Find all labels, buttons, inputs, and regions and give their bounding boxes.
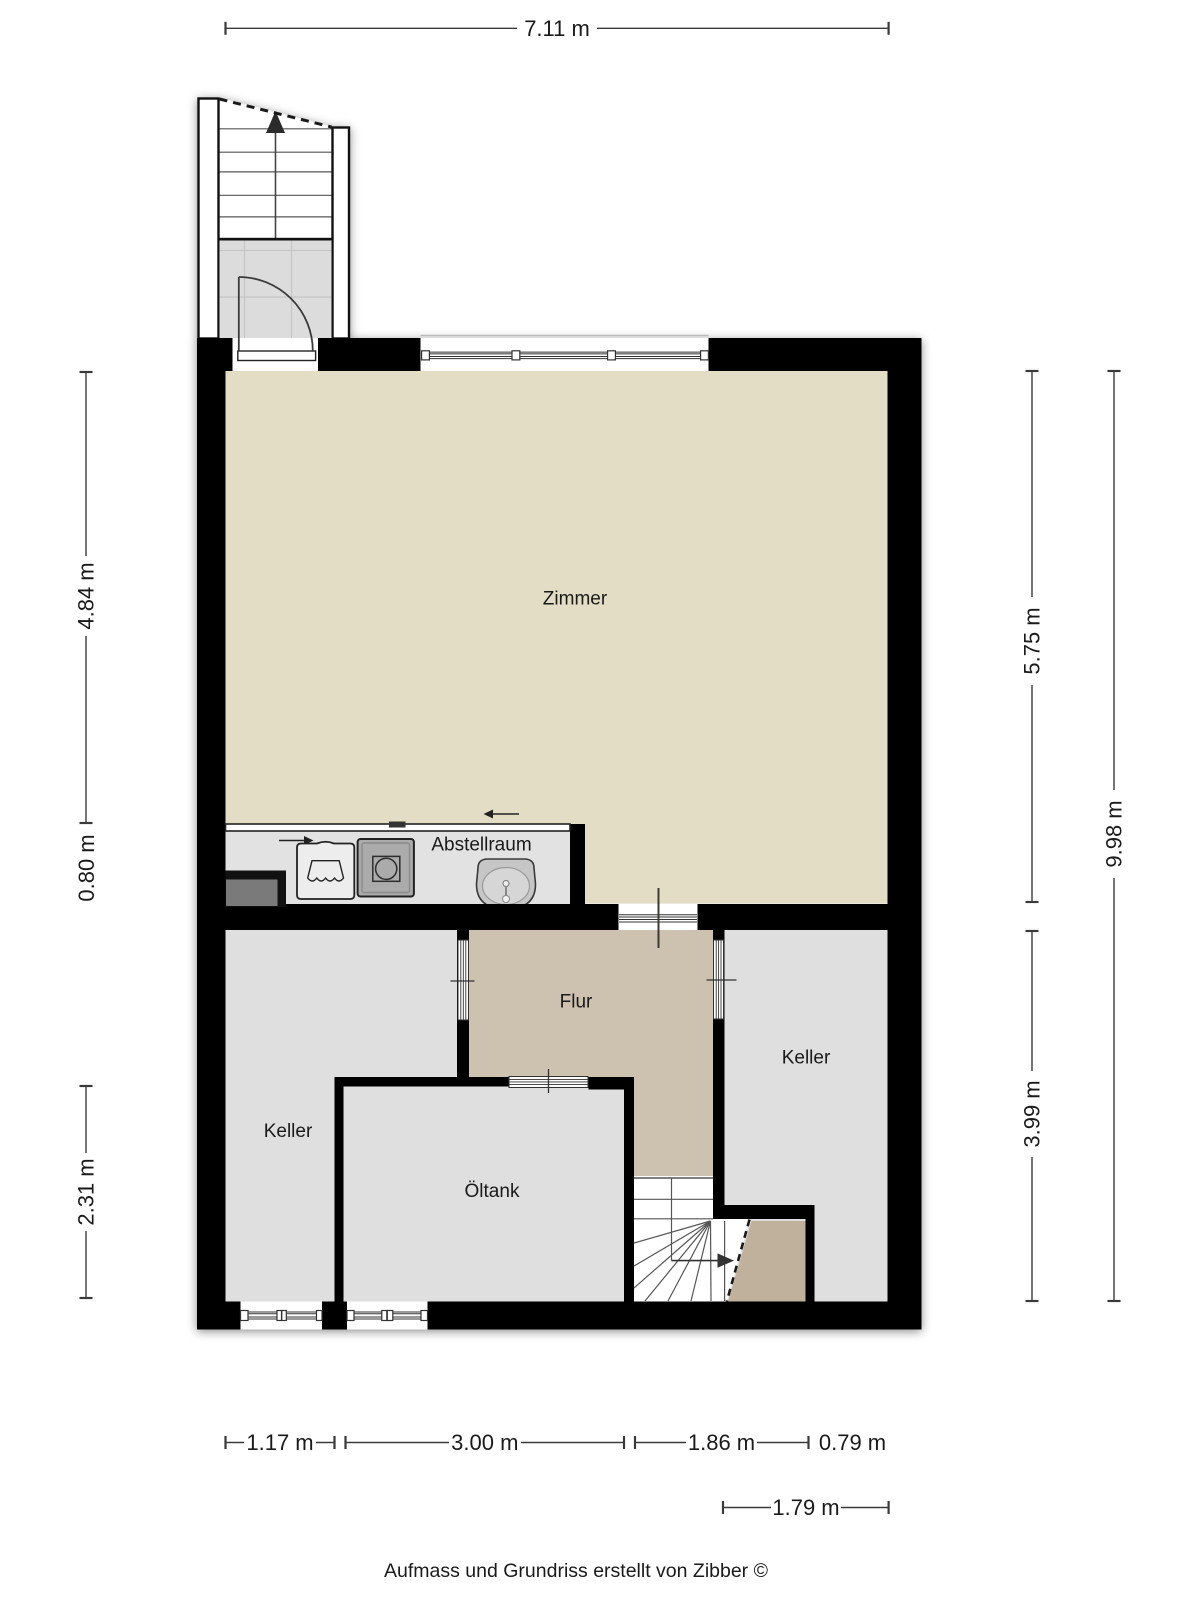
svg-text:1.79 m: 1.79 m xyxy=(772,1495,839,1520)
svg-text:Abstellraum: Abstellraum xyxy=(431,835,531,856)
svg-text:Zimmer: Zimmer xyxy=(543,589,608,610)
svg-text:0.80 m: 0.80 m xyxy=(74,834,99,901)
svg-text:1.86 m: 1.86 m xyxy=(688,1430,755,1455)
svg-text:Keller: Keller xyxy=(264,1121,313,1142)
svg-text:2.31 m: 2.31 m xyxy=(74,1158,99,1225)
svg-text:Öltank: Öltank xyxy=(465,1181,520,1202)
svg-text:0.79 m: 0.79 m xyxy=(819,1430,886,1455)
svg-text:1.17 m: 1.17 m xyxy=(246,1430,313,1455)
svg-text:3.99 m: 3.99 m xyxy=(1020,1080,1045,1147)
svg-text:5.75 m: 5.75 m xyxy=(1020,607,1045,674)
svg-text:Flur: Flur xyxy=(560,992,593,1013)
svg-text:4.84 m: 4.84 m xyxy=(74,562,99,629)
svg-text:9.98 m: 9.98 m xyxy=(1102,800,1127,867)
svg-text:7.11 m: 7.11 m xyxy=(524,16,590,41)
svg-text:Keller: Keller xyxy=(782,1048,831,1069)
svg-text:Aufmass und Grundriss erstellt: Aufmass und Grundriss erstellt von Zibbe… xyxy=(384,1560,769,1582)
svg-text:3.00 m: 3.00 m xyxy=(451,1430,518,1455)
